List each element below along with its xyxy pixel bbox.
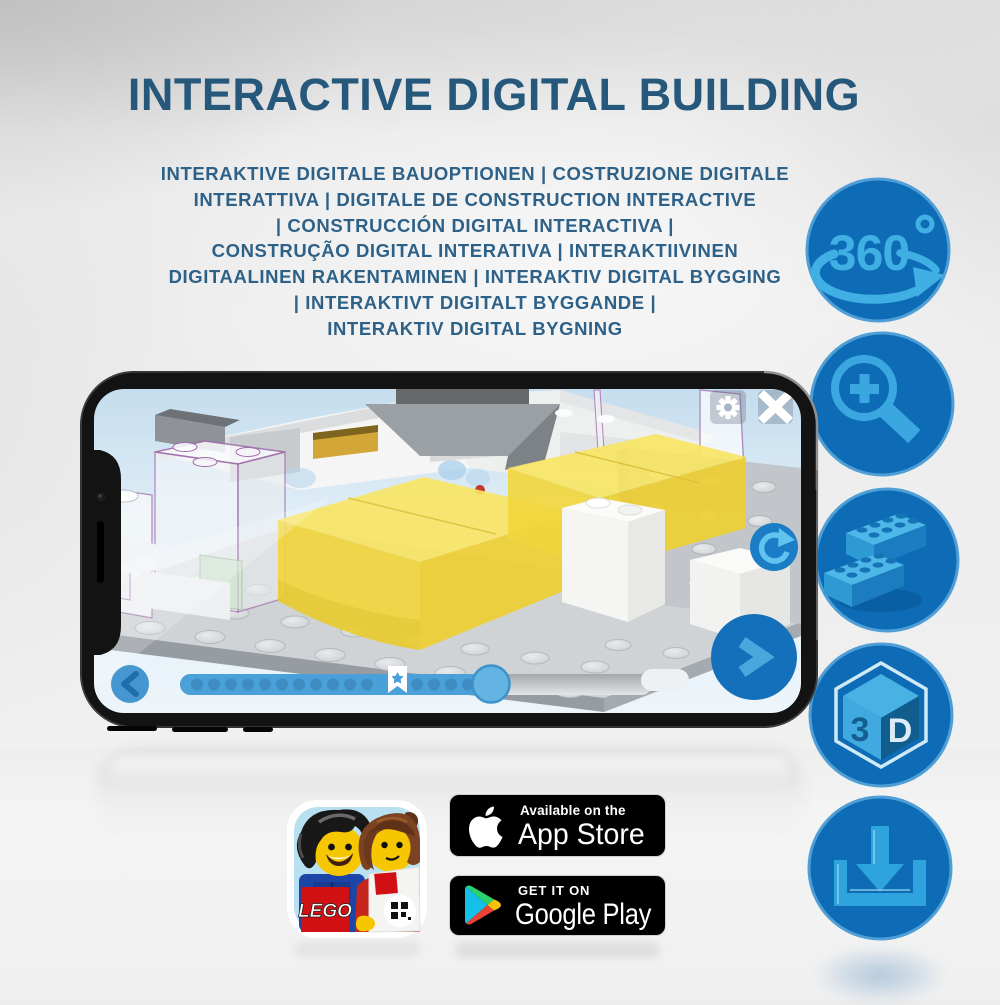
svg-text:LEGO: LEGO (298, 901, 352, 922)
